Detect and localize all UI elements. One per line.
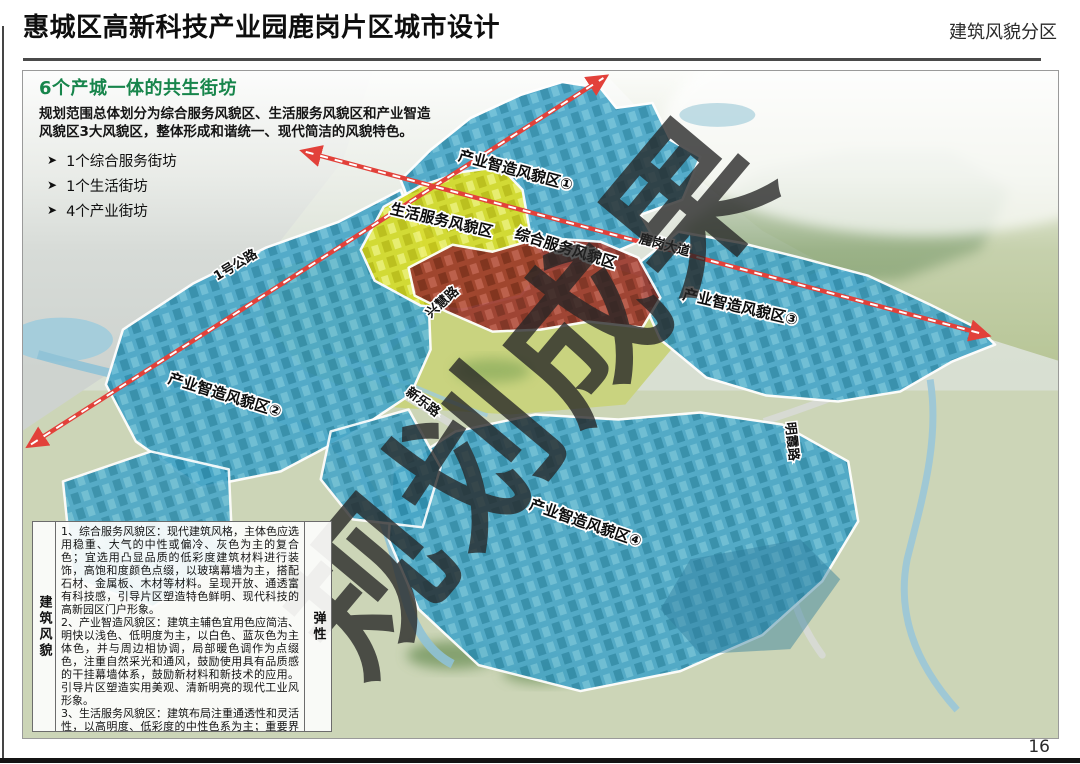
legend-right-label: 弹性 [304,522,331,731]
legend-paragraph-living: 3、生活服务风貌区：建筑布局注重通透性和灵活性，以高明度、低彩度的中性色系为主；… [61,708,299,731]
legend-left-label: 建筑风貌 [33,522,56,731]
bullet-item: ➤ 1个综合服务街坊 [47,150,439,171]
legend-text: 1、综合服务风貌区：现代建筑风格，主体色应选用稳重、大气的中性或偏冷、灰色为主的… [56,522,304,731]
bullet-item: ➤ 1个生活街坊 [47,175,439,196]
bullet-label: 4个产业街坊 [66,200,148,221]
header: 惠城区高新科技产业园鹿岗片区城市设计 建筑风貌分区 [23,12,1057,45]
legend-paragraph-service: 1、综合服务风貌区：现代建筑风格，主体色应选用稳重、大气的中性或偏冷、灰色为主的… [61,526,299,617]
intro-block: 6个产城一体的共生街坊 规划范围总体划分为综合服务风貌区、生活服务风貌区和产业智… [39,74,439,225]
intro-body: 规划范围总体划分为综合服务风貌区、生活服务风貌区和产业智造风貌区3大风貌区，整体… [39,106,439,142]
arrow-bullet-icon: ➤ [47,178,57,192]
slide-page: 惠城区高新科技产业园鹿岗片区城市设计 建筑风貌分区 [0,0,1080,764]
section-label: 建筑风貌分区 [949,18,1057,45]
intro-bullets: ➤ 1个综合服务街坊 ➤ 1个生活街坊 ➤ 4个产业街坊 [39,150,439,221]
bullet-label: 1个综合服务街坊 [66,150,177,171]
header-divider [23,58,1041,61]
map-panel: 产业智造风貌区① 生活服务风貌区 综合服务风貌区 产业智造风貌区③ 产业智造风貌… [22,70,1059,739]
bullet-item: ➤ 4个产业街坊 [47,200,439,221]
style-legend-box: 建筑风貌 1、综合服务风貌区：现代建筑风格，主体色应选用稳重、大气的中性或偏冷、… [32,521,332,732]
legend-paragraph-industry: 2、产业智造风貌区：建筑主辅色宜用色应简洁、明快以浅色、低明度为主，以白色、蓝灰… [61,617,299,708]
intro-heading: 6个产城一体的共生街坊 [39,74,439,100]
arrow-bullet-icon: ➤ [47,203,57,217]
slide-edge-line [2,26,4,758]
bottom-bar [0,758,1080,763]
page-title: 惠城区高新科技产业园鹿岗片区城市设计 [23,12,500,45]
page-number: 16 [1028,737,1050,757]
bullet-label: 1个生活街坊 [66,175,148,196]
arrow-bullet-icon: ➤ [47,153,57,167]
